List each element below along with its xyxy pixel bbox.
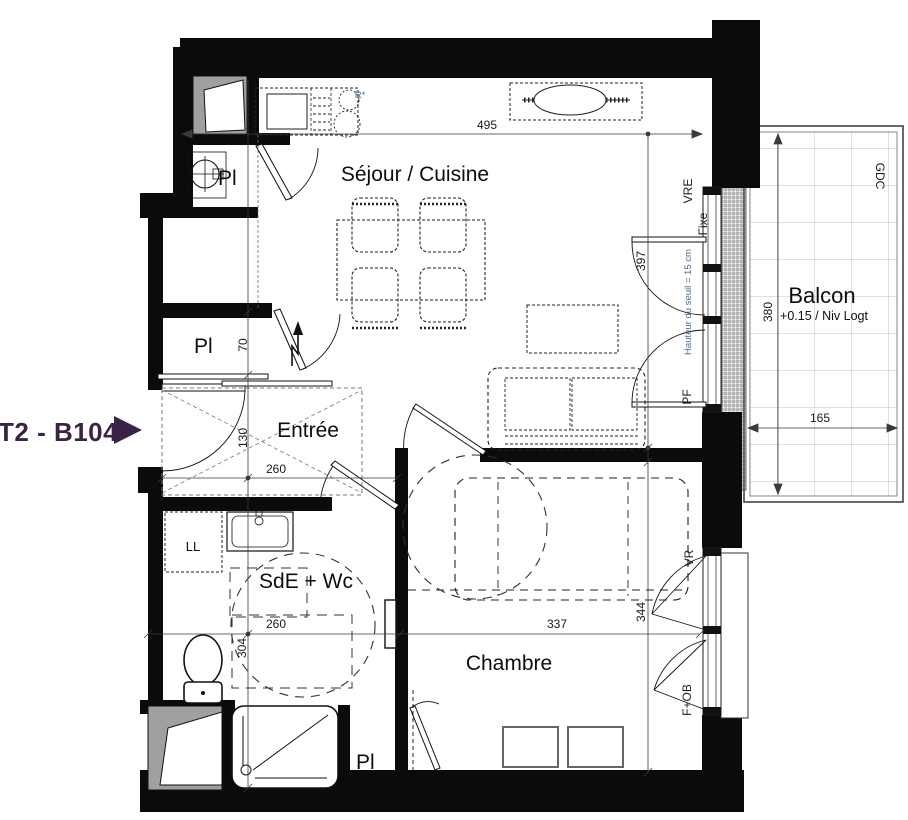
dim-130: 130 (236, 428, 250, 448)
entrance-door (162, 384, 245, 471)
dining-table (337, 198, 485, 328)
chest-furniture (503, 727, 558, 767)
closet-label-bottom: Pl (356, 751, 375, 774)
dim-260-sde: 260 (266, 617, 286, 631)
sofa (488, 368, 645, 450)
closet-bottom-door (410, 690, 440, 770)
threshold-note: Hauteur du seuil = 15 cm (683, 249, 694, 355)
closet-label-top: Pl (218, 167, 237, 190)
drain-icon (241, 765, 251, 775)
duct-top-left (193, 76, 247, 134)
sde-radiator (385, 600, 396, 648)
coffee-table (527, 305, 618, 353)
opening-label-vr: VR (682, 549, 696, 566)
room-label-chambre: Chambre (466, 652, 552, 675)
closet-label-middle: Pl (194, 335, 213, 358)
dim-397: 397 (634, 251, 648, 271)
dim-380: 380 (761, 302, 775, 322)
washing-machine-label: LL (186, 539, 200, 554)
chest-furniture (568, 727, 623, 767)
room-label-entree: Entrée (277, 419, 339, 442)
turning-circle (403, 455, 547, 599)
fridge-label: R* (355, 90, 366, 101)
opening-label-fob: F+OB (680, 684, 694, 716)
balcon-level-note: +0.15 / Niv Logt (780, 309, 868, 323)
dim-260-entree: 260 (266, 462, 286, 476)
duct-bottom-left (148, 706, 222, 790)
room-label-sde: SdE + Wc (259, 570, 353, 593)
washbasin (227, 506, 293, 551)
tap-icon (255, 517, 263, 525)
dim-344: 344 (634, 602, 648, 622)
hob-icon (334, 111, 360, 137)
room-label-balcon: Balcon (788, 283, 855, 308)
floor-plan: T2 - B104 Séjour / Cuisine Entrée SdE + … (0, 0, 908, 820)
bed (408, 478, 688, 600)
dim-165: 165 (810, 411, 830, 425)
dim-495: 495 (477, 118, 497, 132)
chair-icon (352, 198, 398, 252)
opening-label-vre: VRE (681, 179, 695, 204)
opening-label-fixe: Fixe (696, 212, 710, 235)
walls (138, 20, 760, 812)
chambre-window (703, 548, 748, 718)
unit-pointer-icon (114, 416, 142, 444)
chambre-door (404, 404, 486, 455)
closet-top-door (256, 144, 318, 200)
vr-casement-swing (652, 556, 706, 630)
dim-70: 70 (236, 338, 250, 352)
unit-label: T2 - B104 (0, 417, 118, 447)
chair-icon (420, 268, 466, 322)
balcony-gdc-label: GDC (873, 163, 887, 190)
floor-plan-drawing: T2 - B104 Séjour / Cuisine Entrée SdE + … (0, 0, 908, 820)
room-label-sejour: Séjour / Cuisine (341, 163, 489, 186)
sink-icon (267, 94, 307, 129)
opening-label-pf: PF (680, 389, 694, 404)
kitchen-counter (255, 88, 360, 308)
toilet (184, 635, 222, 703)
chair-icon (420, 198, 466, 252)
dim-304: 304 (235, 638, 249, 658)
chair-icon (352, 268, 398, 322)
sideboard-radiator (510, 83, 642, 120)
dim-337: 337 (547, 617, 567, 631)
